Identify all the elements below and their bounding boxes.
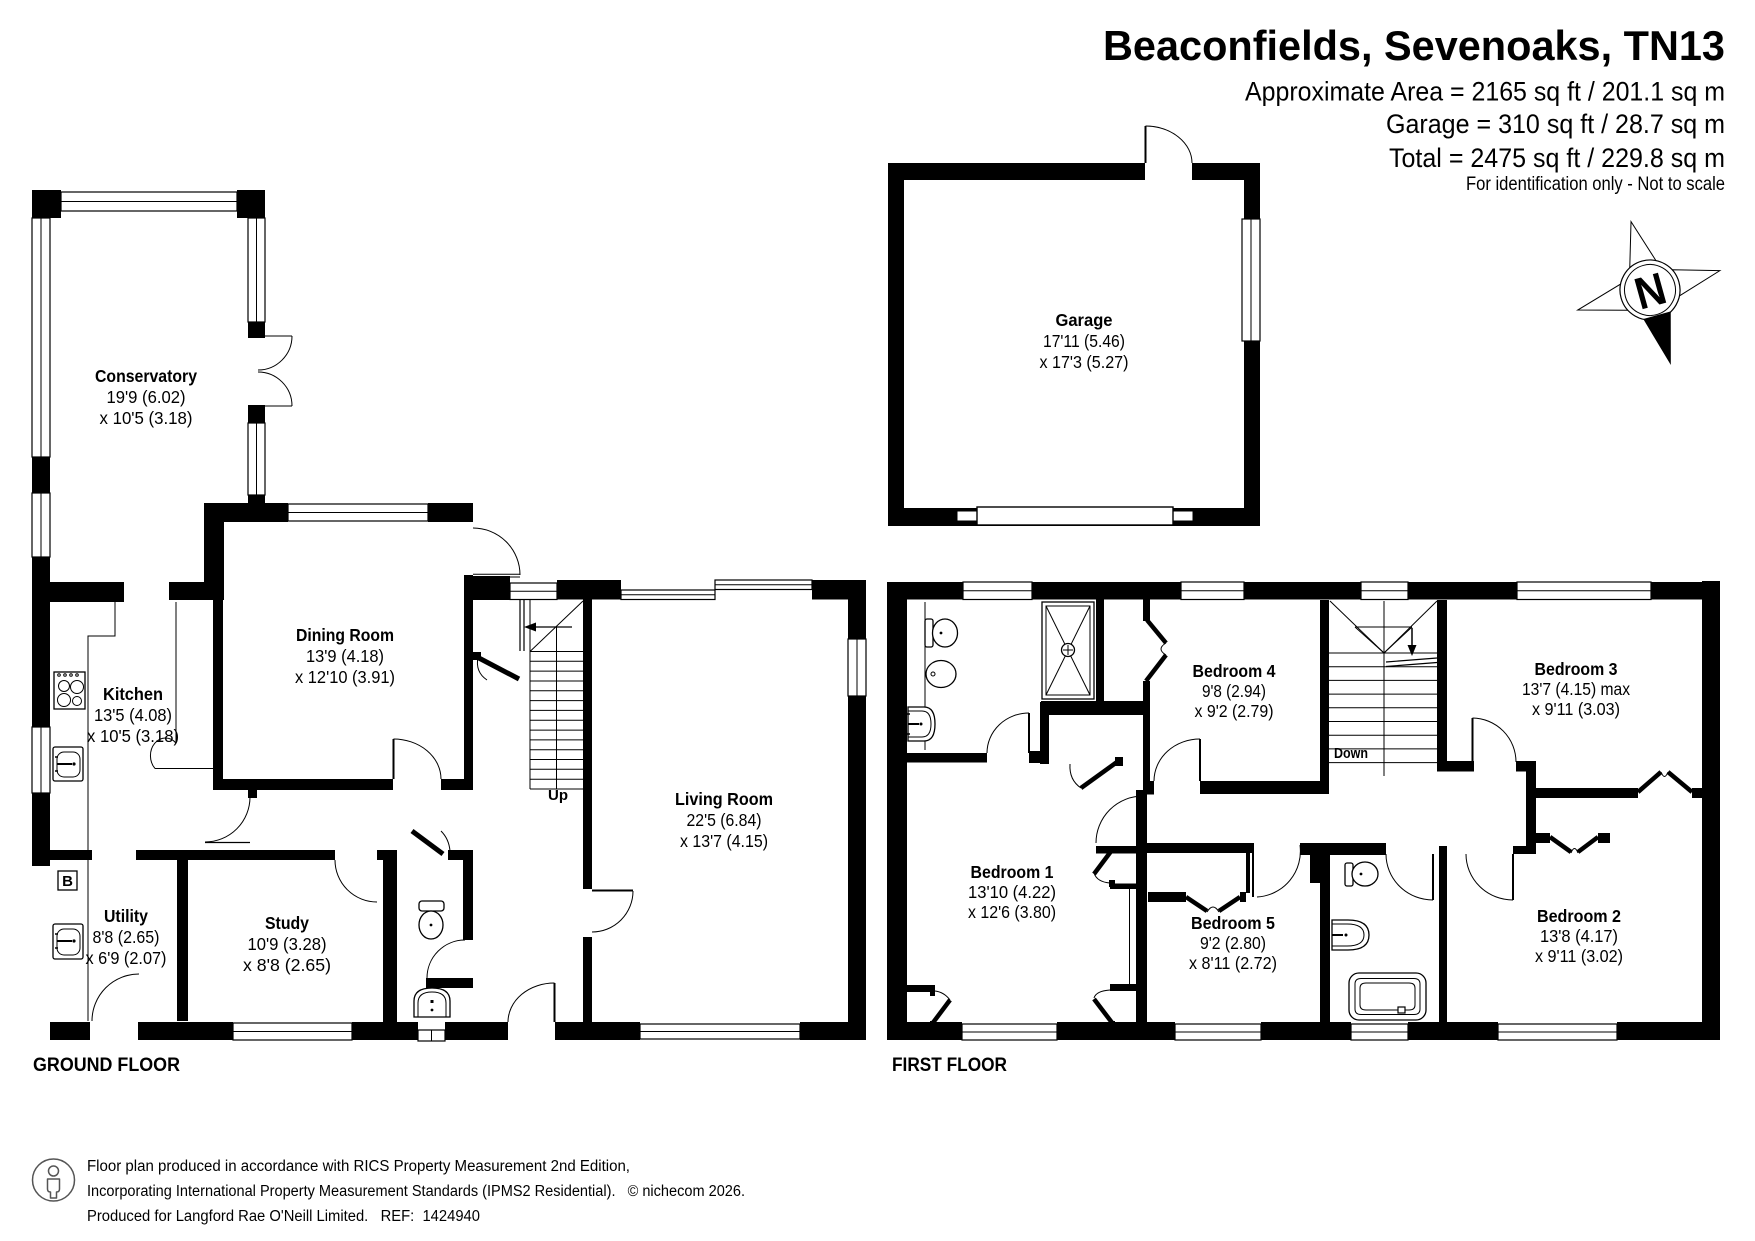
svg-text:x 12'10 (3.91): x 12'10 (3.91) [295, 667, 395, 687]
svg-text:Bedroom 3: Bedroom 3 [1535, 659, 1618, 679]
svg-text:B: B [62, 873, 73, 890]
svg-text:x 10'5 (3.18): x 10'5 (3.18) [87, 726, 179, 746]
svg-text:x 9'11 (3.03): x 9'11 (3.03) [1532, 699, 1620, 719]
svg-text:Approximate Area = 2165 sq ft: Approximate Area = 2165 sq ft / 201.1 sq… [1245, 77, 1725, 107]
svg-text:10'9 (3.28): 10'9 (3.28) [248, 934, 327, 954]
svg-text:Incorporating International Pr: Incorporating International Property Mea… [87, 1183, 745, 1200]
svg-text:x 12'6 (3.80): x 12'6 (3.80) [968, 902, 1056, 922]
svg-text:Up: Up [548, 787, 568, 804]
svg-text:For identification only - Not: For identification only - Not to scale [1466, 173, 1725, 195]
svg-text:Floor plan produced in accorda: Floor plan produced in accordance with R… [87, 1158, 630, 1175]
svg-text:Conservatory: Conservatory [95, 366, 197, 386]
svg-text:Bedroom 5: Bedroom 5 [1191, 913, 1275, 933]
svg-text:Study: Study [265, 913, 309, 933]
svg-text:Utility: Utility [104, 906, 148, 926]
svg-text:Down: Down [1334, 746, 1368, 762]
svg-text:13'8 (4.17): 13'8 (4.17) [1540, 926, 1618, 946]
svg-text:17'11 (5.46): 17'11 (5.46) [1043, 331, 1125, 351]
svg-text:x 9'2 (2.79): x 9'2 (2.79) [1195, 701, 1274, 721]
svg-text:Garage = 310 sq ft / 28.7 sq m: Garage = 310 sq ft / 28.7 sq m [1386, 109, 1725, 139]
svg-text:x 9'11 (3.02): x 9'11 (3.02) [1535, 946, 1623, 966]
svg-text:13'5 (4.08): 13'5 (4.08) [94, 705, 172, 725]
svg-text:Kitchen: Kitchen [103, 684, 163, 704]
svg-text:Bedroom 2: Bedroom 2 [1537, 906, 1621, 926]
svg-text:9'8 (2.94): 9'8 (2.94) [1202, 681, 1266, 701]
svg-text:x 13'7 (4.15): x 13'7 (4.15) [680, 831, 768, 851]
svg-text:Beaconfields, Sevenoaks, TN13: Beaconfields, Sevenoaks, TN13 [1103, 22, 1725, 69]
svg-text:Bedroom 1: Bedroom 1 [971, 862, 1054, 882]
svg-text:8'8 (2.65): 8'8 (2.65) [93, 927, 160, 947]
svg-text:x 8'11 (2.72): x 8'11 (2.72) [1189, 953, 1277, 973]
svg-text:Dining Room: Dining Room [296, 625, 394, 645]
svg-text:13'9 (4.18): 13'9 (4.18) [306, 646, 384, 666]
svg-text:x 6'9 (2.07): x 6'9 (2.07) [86, 948, 167, 968]
svg-text:FIRST FLOOR: FIRST FLOOR [892, 1055, 1007, 1076]
svg-text:9'2 (2.80): 9'2 (2.80) [1200, 933, 1266, 953]
svg-text:x 8'8 (2.65): x 8'8 (2.65) [243, 955, 331, 975]
svg-text:x 10'5 (3.18): x 10'5 (3.18) [100, 408, 193, 428]
svg-text:22'5 (6.84): 22'5 (6.84) [687, 810, 762, 830]
svg-text:x 17'3 (5.27): x 17'3 (5.27) [1040, 352, 1129, 372]
svg-text:13'10 (4.22): 13'10 (4.22) [968, 882, 1056, 902]
svg-text:19'9 (6.02): 19'9 (6.02) [107, 387, 186, 407]
svg-text:Bedroom 4: Bedroom 4 [1193, 661, 1276, 681]
svg-text:Garage: Garage [1056, 310, 1113, 330]
svg-text:13'7 (4.15) max: 13'7 (4.15) max [1522, 679, 1630, 699]
svg-text:GROUND FLOOR: GROUND FLOOR [33, 1055, 180, 1076]
svg-text:Living Room: Living Room [675, 789, 773, 809]
svg-text:Produced for Langford Rae O'Ne: Produced for Langford Rae O'Neill Limite… [87, 1208, 480, 1225]
svg-text:Total = 2475 sq ft / 229.8 sq: Total = 2475 sq ft / 229.8 sq m [1389, 143, 1725, 173]
